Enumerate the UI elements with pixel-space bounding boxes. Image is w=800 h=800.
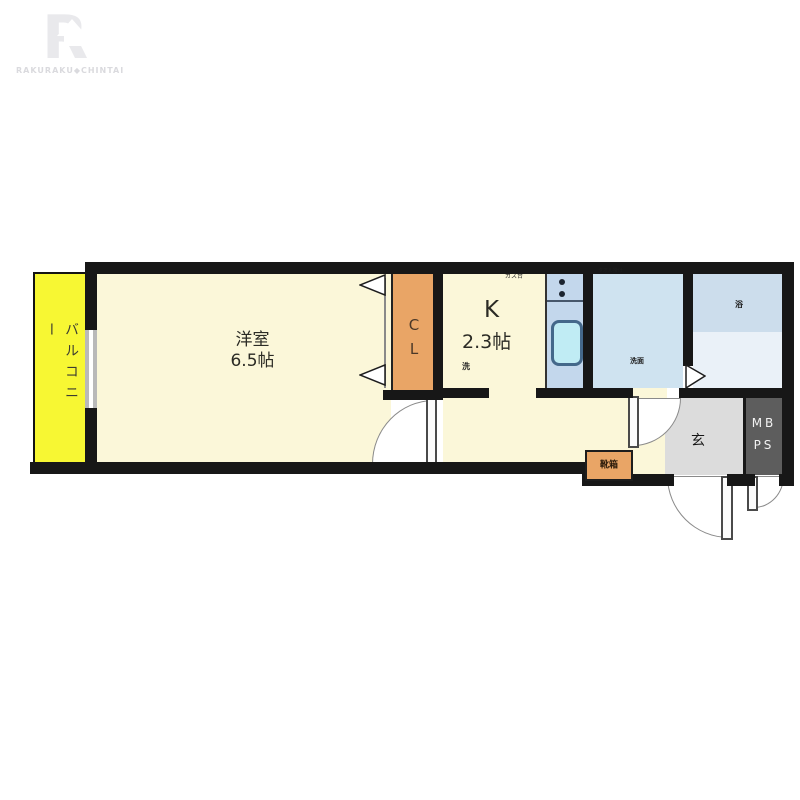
main-room-label: 洋室 bbox=[195, 330, 310, 351]
wall bbox=[383, 390, 443, 400]
entrance-door-swing-icon bbox=[667, 476, 729, 538]
closet-label: CL bbox=[405, 316, 423, 364]
closet-door-icon bbox=[359, 364, 386, 386]
floor-plan-page: R RAKURAKU◆CHINTAI バルコニー 洋室 6.5帖 CL K 2.… bbox=[0, 0, 800, 800]
kitchen-label: K bbox=[484, 297, 499, 323]
shoe-box-label: 靴箱 bbox=[600, 461, 618, 470]
washbasin-label: 洗面 bbox=[630, 358, 644, 365]
wall bbox=[727, 474, 755, 486]
wall bbox=[782, 262, 794, 486]
bathtub-label: 浴 bbox=[735, 301, 743, 309]
logo-house-roof-icon bbox=[57, 19, 87, 36]
wall bbox=[30, 462, 592, 474]
wall bbox=[679, 388, 794, 398]
wall bbox=[743, 398, 746, 475]
wall bbox=[683, 262, 693, 366]
meter-box-line1: MB bbox=[746, 416, 782, 430]
closet-area: CL bbox=[391, 274, 435, 392]
meter-box-area: MB PS bbox=[746, 398, 782, 475]
washing-machine-label: 洗 bbox=[462, 363, 470, 371]
kitchen-size: 2.3帖 bbox=[462, 327, 511, 354]
wall bbox=[583, 262, 593, 398]
logo-text: RAKURAKU◆CHINTAI bbox=[16, 66, 124, 75]
meter-box-line2: PS bbox=[746, 438, 782, 452]
kitchen-sink-icon bbox=[551, 320, 583, 366]
counter-divider bbox=[547, 300, 583, 302]
kitchen-counter bbox=[545, 272, 585, 392]
bath-door-icon bbox=[685, 364, 706, 389]
shoe-box: 靴箱 bbox=[585, 450, 633, 481]
balcony-label: バルコニー bbox=[41, 322, 81, 418]
wall bbox=[593, 388, 633, 398]
towel-rack-label: タオル掛け bbox=[598, 269, 623, 274]
burner-icon bbox=[559, 279, 565, 285]
logo-house-body-icon bbox=[64, 35, 81, 46]
main-room-size: 6.5帖 bbox=[195, 351, 310, 372]
gas-stove-label: ガス台 bbox=[505, 274, 523, 280]
balcony-area: バルコニー bbox=[33, 272, 89, 468]
wall bbox=[443, 388, 489, 398]
washroom-door-leaf-icon bbox=[628, 396, 639, 448]
room-door-leaf-icon bbox=[426, 398, 437, 464]
wall bbox=[433, 262, 443, 398]
washroom-area bbox=[593, 274, 683, 388]
bathroom-lower-area bbox=[693, 332, 782, 388]
burner-icon bbox=[559, 291, 565, 297]
window-icon bbox=[85, 330, 97, 408]
entrance-label: 玄 bbox=[691, 430, 705, 450]
closet-door-icon bbox=[359, 274, 386, 296]
